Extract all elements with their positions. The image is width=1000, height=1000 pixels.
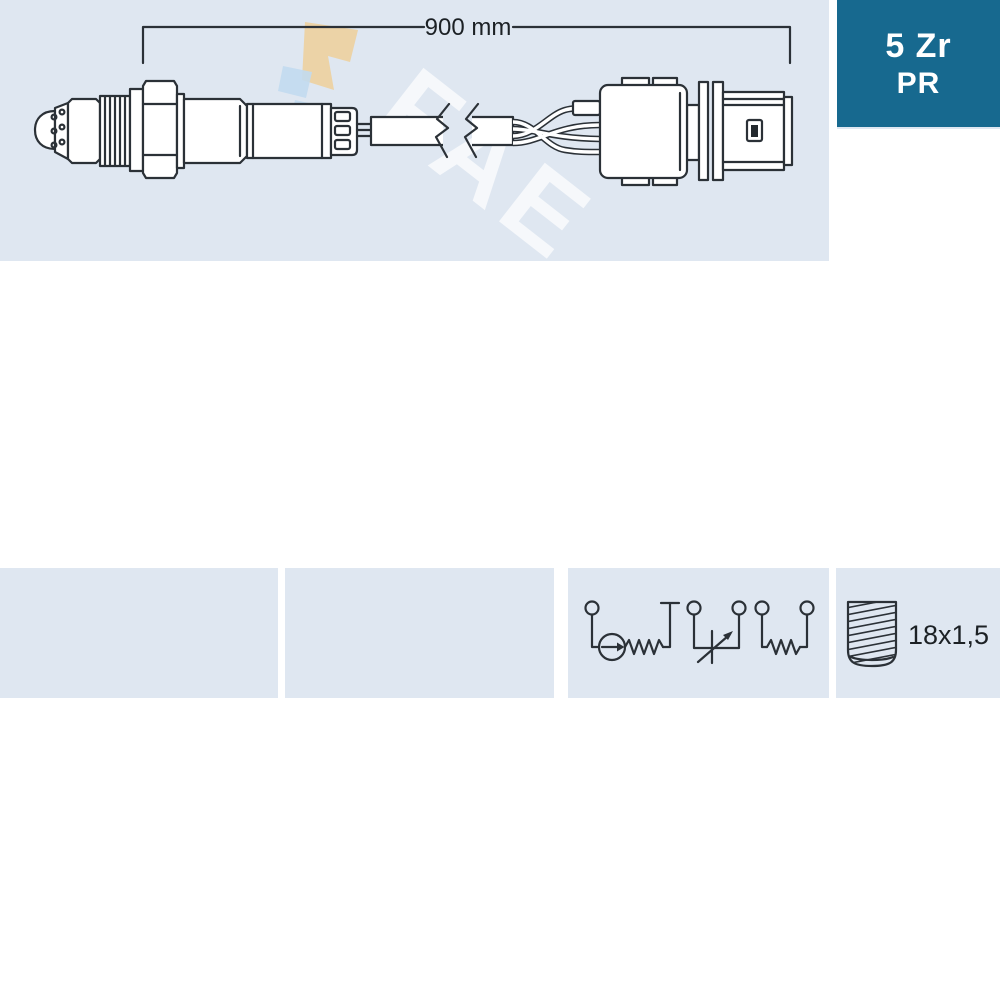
circuit-sub3-resistor <box>756 602 814 655</box>
thread-size-label: 18x1,5 <box>908 620 989 650</box>
sensor-code-panel: 5 Zr PR <box>837 0 1000 127</box>
thread-spec-panel: 18x1,5 <box>836 568 1000 698</box>
hex-nut <box>143 81 177 178</box>
circuit-panel <box>568 568 829 698</box>
connector-assembly-drawing <box>573 78 792 185</box>
thread-bolt-icon: 18x1,5 <box>836 568 1000 698</box>
sensor-diagram-svg: FAE 900 mm <box>0 0 829 261</box>
dimension-label: 900 mm <box>425 14 512 41</box>
code-line-1: 5 Zr <box>885 29 951 63</box>
dimension-line: 900 mm <box>143 14 790 63</box>
main-drawing-panel: FAE 900 mm <box>0 0 829 261</box>
circuit-sub2-variable-resistor <box>688 602 746 664</box>
connector-boot <box>600 85 687 178</box>
code-line-2: PR <box>897 69 941 99</box>
bolt-shank <box>846 598 898 666</box>
empty-panel-2 <box>285 568 554 698</box>
empty-panel-1 <box>0 568 278 698</box>
catalog-diagram-image: FAE 900 mm <box>0 0 1000 1000</box>
wiring-circuit-icon <box>568 568 829 698</box>
circuit-sub1-current-source <box>586 602 680 661</box>
oxygen-sensor-drawing <box>35 81 371 178</box>
